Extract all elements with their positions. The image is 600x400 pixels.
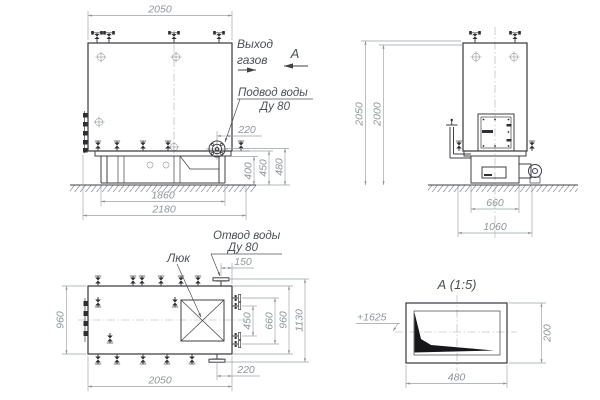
drain-valve-icon xyxy=(140,141,146,151)
safety-valve-icon xyxy=(103,31,115,43)
side-flange-icon xyxy=(232,302,241,309)
valve-icon xyxy=(95,297,101,307)
dim-960-left: 960 xyxy=(55,311,67,329)
dim-220-bottom: 220 xyxy=(236,364,255,376)
valve-icon xyxy=(158,276,164,286)
safety-valve-icon xyxy=(469,31,481,43)
valve-icon xyxy=(130,276,136,286)
duct-section-outer xyxy=(406,303,507,363)
elevation-mark: +1625 xyxy=(356,312,400,332)
dim-2050-height: 2050 xyxy=(354,102,366,127)
dim-960-right: 960 xyxy=(278,311,290,329)
safety-valve-icon xyxy=(509,31,521,43)
dim-2000: 2000 xyxy=(372,102,384,127)
drain-pipe xyxy=(446,119,471,158)
water-outlet-flange xyxy=(213,278,229,286)
weld-wedge-profile xyxy=(415,313,495,353)
section-arrow-label: А xyxy=(290,46,300,61)
drain-valve-icon xyxy=(238,141,244,151)
safety-valve-icon xyxy=(91,31,103,43)
detail-title: А (1:5) xyxy=(436,277,476,292)
dim-220-inlet: 220 xyxy=(237,124,256,136)
dim-450-flange: 450 xyxy=(242,312,254,330)
dim-1860: 1860 xyxy=(151,190,175,202)
blower-fan xyxy=(519,164,542,183)
hatch-opening xyxy=(181,300,224,341)
valve-icon xyxy=(164,354,170,364)
dim-400: 400 xyxy=(243,162,255,180)
door-handle xyxy=(482,130,493,133)
valve-icon xyxy=(107,333,113,343)
safety-valve-icon xyxy=(168,31,180,43)
drain-valve-icon xyxy=(95,141,101,151)
dim-480: 480 xyxy=(274,158,286,176)
front-view: 2050 1860 2180 220 400 450 480 xyxy=(70,4,313,221)
drain-valve-icon xyxy=(456,141,462,151)
water-outlet-label-2: Ду 80 xyxy=(226,242,259,254)
boiler-body-front xyxy=(88,43,232,151)
lifting-mark-icon xyxy=(171,52,182,63)
detail-view-a: А (1:5) +1625 480 200 xyxy=(356,277,554,388)
gas-outlet-label-2: газов xyxy=(237,53,268,67)
valve-icon xyxy=(189,354,195,364)
side-flange-icon xyxy=(232,332,241,339)
side-view: 2050 2000 660 1060 xyxy=(354,27,579,240)
water-inlet-label-1: Подвод воды xyxy=(238,87,308,99)
dim-2180: 2180 xyxy=(151,204,176,216)
valve-icon xyxy=(95,276,101,286)
lifting-mark-icon xyxy=(509,52,520,63)
dim-480: 480 xyxy=(448,372,466,384)
side-base xyxy=(464,151,526,183)
valve-icon xyxy=(114,354,120,364)
valve-icon xyxy=(140,354,146,364)
dim-1060: 1060 xyxy=(483,221,507,233)
valve-icon xyxy=(172,297,178,307)
outlet-leader-line xyxy=(211,254,220,276)
side-flange-icon xyxy=(232,294,241,301)
side-flange-icon xyxy=(232,340,241,347)
dim-2050-top: 2050 xyxy=(147,4,172,16)
furnace-door xyxy=(478,114,514,151)
hatch-label: Люк xyxy=(166,251,191,265)
dim-660-flange: 660 xyxy=(264,312,276,330)
lifting-mark-icon xyxy=(94,117,105,128)
lifting-mark-icon xyxy=(471,52,482,63)
valve-icon xyxy=(139,276,145,286)
lifting-mark-icon xyxy=(96,52,107,63)
dim-200: 200 xyxy=(542,324,554,343)
ground-hatch xyxy=(428,186,578,193)
dim-450: 450 xyxy=(258,159,270,177)
ash-door xyxy=(482,167,506,178)
water-inlet-label-2: Ду 80 xyxy=(258,101,291,113)
water-outlet-label-1: Отвод воды xyxy=(213,230,281,242)
dim-150: 150 xyxy=(234,256,252,268)
elevation-value: +1625 xyxy=(357,312,387,324)
support-frame xyxy=(95,151,231,183)
boiler-technical-drawing: 2050 1860 2180 220 400 450 480 xyxy=(0,0,600,400)
dim-2050-bottom: 2050 xyxy=(147,375,172,387)
drain-valve-icon xyxy=(529,141,535,151)
side-dimensions: 2050 2000 660 1060 xyxy=(354,41,533,237)
top-view: Люк Отвод воды Ду 80 150 960 2050 220 xyxy=(55,230,310,391)
drawing-canvas: 2050 1860 2180 220 400 450 480 xyxy=(0,0,600,400)
dim-660: 660 xyxy=(486,197,504,209)
bottom-flange xyxy=(209,354,225,362)
dim-1130: 1130 xyxy=(294,309,306,332)
valve-icon xyxy=(195,276,201,286)
door-hinges xyxy=(83,111,88,153)
safety-valve-icon xyxy=(213,31,225,43)
valve-icon xyxy=(95,354,101,364)
gas-outlet-label-1: Выход xyxy=(237,37,273,51)
drain-valve-icon xyxy=(114,141,120,151)
